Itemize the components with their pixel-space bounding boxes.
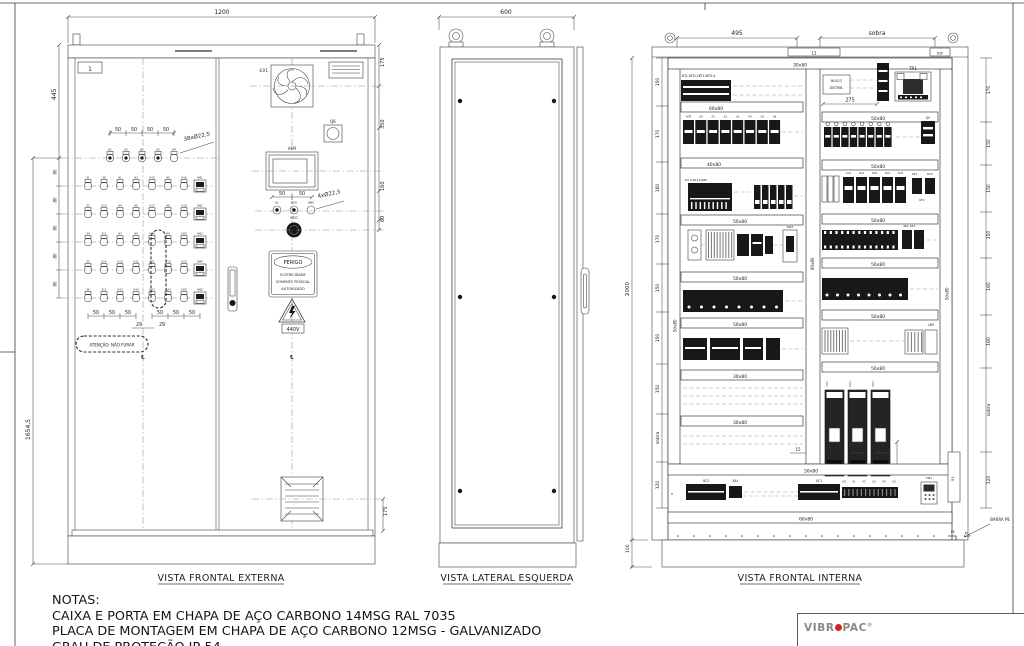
vfd-label: 3U1	[871, 381, 875, 387]
dim-50: 50	[131, 127, 137, 133]
btn-label: H20	[181, 232, 187, 236]
duct-bottom: 60x80	[799, 517, 813, 523]
transformer	[895, 72, 931, 101]
attention-label: ATENÇÃO: NÃO FURAR	[90, 343, 135, 348]
btn-label: H13	[117, 288, 123, 292]
danger-l1: ELETRICIDADE	[280, 273, 305, 277]
beg-tag: BEG	[290, 216, 298, 220]
dim-160: 160	[380, 181, 386, 191]
duct-50g: 50x80	[871, 262, 885, 268]
btn-label: H18	[181, 204, 187, 208]
view-side: 600 VISTA LATERAL ESQUERDA	[437, 9, 589, 584]
duct-60: 60x80	[709, 106, 723, 112]
btn-label: H8	[166, 204, 170, 208]
btn-label: H17	[149, 204, 155, 208]
fan-tag: -EX1	[259, 68, 269, 73]
danger-title: PERIGO	[284, 260, 303, 266]
dim-50b: 50	[109, 310, 115, 316]
ku-label: KU A BL11/JMP	[685, 178, 707, 182]
left-dim: 120	[655, 481, 661, 490]
dim-ihm-a: 50	[279, 191, 285, 197]
dim-80v: 80	[53, 169, 58, 175]
dim-175t: 175	[380, 57, 386, 67]
btn-label: H1	[108, 148, 112, 152]
side-plinth	[439, 543, 576, 567]
doc-pocket-label: 1	[88, 66, 92, 73]
duct-50e: 50x80	[871, 164, 885, 170]
title-external: VISTA FRONTAL EXTERNA	[157, 573, 284, 584]
view-internal: 495 sobra L1 X2F 50x80 80x80 50x80 30x80…	[625, 30, 1010, 584]
btn-label: H11	[133, 260, 139, 264]
int-plinth	[662, 540, 964, 567]
dim-ihm-b: 50	[299, 191, 305, 197]
dim-100: 100	[625, 544, 631, 553]
btn-label: H6	[134, 204, 138, 208]
lb5-label: LB5	[928, 323, 934, 327]
dim-445: 445	[51, 88, 58, 100]
relay	[754, 185, 761, 209]
dim-175b: 175	[383, 506, 389, 516]
dim-29a: 29	[136, 322, 142, 328]
btn-label: S6	[86, 288, 90, 292]
lug	[357, 34, 364, 45]
x-label: X5	[892, 480, 896, 484]
right-dim: 150	[986, 139, 992, 148]
dim-495: 495	[731, 30, 743, 37]
danger-sign: PERIGO ELETRICIDADE SOMENTE PESSOAL AUTO…	[269, 251, 317, 297]
door-btn-label: HBS	[308, 201, 314, 205]
vibropac-logo: VIBRPAC®	[804, 622, 873, 634]
dim-sobra: sobra	[869, 30, 886, 37]
door-handle	[228, 267, 237, 311]
btn-label: S5	[86, 260, 90, 264]
dim-2000: 2000	[625, 282, 631, 296]
lug	[73, 34, 80, 45]
xc2-label: XC2	[703, 479, 709, 483]
drawing-canvas: 1200 1 -EX1 175 Q6	[0, 0, 1024, 646]
centerline-glyph: ℄	[290, 354, 294, 361]
ihm-tag: IHM	[288, 146, 296, 151]
relay	[770, 185, 777, 209]
bloco-l1: BLOCO	[831, 79, 843, 83]
bloco-l2: DISTRIB.	[830, 86, 844, 90]
notes-title: NOTAS:	[52, 593, 100, 608]
plinth	[68, 536, 375, 564]
duct-50full: 50x80	[804, 469, 818, 475]
dim-275: 275	[845, 98, 855, 104]
barra-pe-label: BARRA PE	[990, 517, 1010, 522]
centerline-glyph: ℄	[141, 354, 145, 361]
btn-label: S1	[86, 176, 90, 180]
duct-center: 80x80	[810, 257, 815, 270]
duct-50c: 50x80	[733, 322, 747, 328]
voltage-label: 440V	[287, 327, 301, 333]
duct-vert-right	[940, 58, 952, 464]
swt-label: SWT	[787, 225, 794, 229]
left-dim: 150	[655, 385, 661, 394]
hb-label: HB4	[197, 260, 203, 264]
breaker-label: A6	[773, 115, 777, 119]
btn-label: S4	[86, 232, 90, 236]
dim-50b: 50	[189, 310, 195, 316]
duct-40: 40x80	[707, 162, 721, 168]
dim-50: 50	[147, 127, 153, 133]
duct-top-label: 30x80	[793, 63, 807, 69]
duct-30b: 30x80	[733, 420, 747, 426]
dim-80v: 80	[53, 253, 58, 259]
btn-label: S8	[102, 176, 106, 180]
breaker-label: A2	[724, 115, 728, 119]
duct-side-r: 50x80	[945, 287, 950, 300]
breaker-label: A1	[711, 115, 715, 119]
duct-vert-left	[668, 58, 680, 464]
logo-text-left: VIBR	[804, 622, 835, 634]
hb-label: HB2	[197, 204, 203, 208]
dim-1200: 1200	[214, 9, 229, 16]
relay	[778, 185, 785, 209]
btn-label: S2	[86, 204, 90, 208]
q-label: 2Q1	[859, 171, 865, 175]
tm1-label: TM1	[925, 476, 932, 480]
xc1-label: XC1	[816, 479, 822, 483]
dim-80v: 80	[53, 281, 58, 287]
vfd-label: 1U1	[825, 381, 829, 387]
louver-top	[329, 62, 363, 78]
r1-label: R1	[951, 476, 955, 481]
right-dim: sobra	[986, 403, 992, 416]
btn-label: H9	[166, 232, 170, 236]
btn-label: H4	[118, 204, 122, 208]
btn-label: S11	[102, 232, 107, 236]
right-dim: 150	[986, 184, 992, 193]
xai-label: XAI	[732, 479, 737, 483]
dim-350: 350	[380, 119, 386, 129]
q-label: 1Q1	[846, 171, 852, 175]
btn-label: S13	[102, 288, 107, 292]
btn-label: H25	[181, 288, 187, 292]
dim-1654: 1654,5	[25, 419, 32, 440]
duct-30a: 30x80	[733, 374, 747, 380]
dim-50b: 50	[125, 310, 131, 316]
pe-label: PE	[951, 530, 955, 534]
right-dim: 150	[986, 231, 992, 240]
relay	[786, 185, 793, 209]
right-dim: 160	[986, 337, 992, 346]
title-block: VIBRPAC®	[797, 613, 1024, 646]
vfd-drives: 1U12U13U1	[825, 381, 890, 476]
dim-50: 50	[115, 127, 121, 133]
breaker-label: A0	[699, 115, 703, 119]
left-dim: sobra	[655, 431, 661, 444]
duct-50f: 50x80	[871, 218, 885, 224]
base-rail	[72, 530, 373, 536]
duct-50h: 50x80	[871, 314, 885, 320]
grid-80-dims: 8080808080	[53, 169, 58, 287]
dim-50: 50	[163, 127, 169, 133]
notes-line2: PLACA DE MONTAGEM EM CHAPA DE AÇO CARBON…	[52, 624, 541, 639]
left-dim: 160	[655, 184, 661, 193]
dim-15: 15	[855, 447, 861, 452]
btn-label: H21	[149, 260, 155, 264]
btn-label: H1	[118, 176, 122, 180]
title-internal: VISTA FRONTAL INTERNA	[738, 573, 863, 584]
btn-label: H2	[124, 148, 128, 152]
duct-50d: 50x80	[871, 116, 885, 122]
duct-side-l: 50x80	[673, 319, 678, 332]
lifting-eyes	[449, 29, 554, 47]
x-label: X0	[842, 480, 846, 484]
q-label: 3Q1	[872, 171, 878, 175]
relay	[762, 185, 769, 209]
roof-box-l1: L1	[812, 51, 817, 56]
main-switch	[324, 125, 342, 142]
logo-dot-icon	[835, 624, 842, 631]
kf2-label: KF2	[919, 198, 925, 202]
left-dim: 170	[655, 130, 661, 139]
dim-80v: 80	[53, 225, 58, 231]
breaker-label: A3	[736, 115, 740, 119]
breaker-label: AGP	[686, 115, 692, 119]
btn-label: S10	[102, 204, 107, 208]
hb-label: HB1	[197, 176, 203, 180]
btn-label: H3	[156, 148, 160, 152]
q-label: 5Q1	[898, 171, 904, 175]
hb-label: HB5	[197, 288, 203, 292]
left-dim: 170	[655, 235, 661, 244]
duct-50b: 50x80	[733, 276, 747, 282]
x-label: X2	[862, 480, 866, 484]
dim-15: 15	[795, 447, 801, 452]
tr1-label: TR1	[908, 66, 917, 71]
dim-15: 15	[879, 447, 885, 452]
door-btn-label: BSA	[291, 201, 298, 205]
dim-29b: 29	[159, 322, 165, 328]
notes-line1: CAIXA E PORTA EM CHAPA DE AÇO CARBONO 14…	[52, 609, 456, 624]
vfd-label: 2U1	[848, 381, 852, 387]
danger-l2: SOMENTE PESSOAL	[276, 280, 310, 284]
btn-label: H22	[181, 260, 187, 264]
hb-label: HB3	[197, 232, 203, 236]
breaker-label: A4	[748, 115, 752, 119]
x-label: X4	[882, 480, 886, 484]
btn-label: H9	[134, 232, 138, 236]
x-label: X1	[852, 480, 856, 484]
kf1-label: KF1	[912, 172, 918, 176]
btn-label: H16	[181, 176, 187, 180]
btn-label: H5	[166, 176, 170, 180]
logo-reg-mark: ®	[867, 623, 873, 629]
notes-line3: GRAU DE PROTEÇÃO IP-54	[52, 640, 221, 646]
view-external: 1200 1 -EX1 175 Q6	[25, 9, 389, 584]
right-dim: 120	[986, 476, 992, 485]
btn-label: B1	[140, 148, 144, 152]
right-dim: 170	[986, 86, 992, 95]
left-dim: 150	[655, 78, 661, 87]
right-dim: 160	[986, 282, 992, 291]
side-handle	[581, 268, 589, 314]
dim-600: 600	[500, 9, 512, 16]
q-label: 4Q1	[885, 171, 891, 175]
btn-label: H14	[133, 288, 139, 292]
kf3-label: KF3	[927, 172, 933, 176]
contactors-label: 4K1 5K1	[903, 224, 916, 228]
q0-label: Q0	[926, 116, 931, 120]
btn-label: H23	[149, 288, 155, 292]
duct-50i: 50x80	[871, 366, 885, 372]
dim-80v: 80	[53, 197, 58, 203]
duct-50a: 50x80	[733, 219, 747, 225]
left-dim: 150	[655, 284, 661, 293]
dim-80: 80	[380, 216, 386, 222]
btn-label: H7	[118, 232, 122, 236]
btn-label: S14	[102, 260, 107, 264]
danger-l3: AUTORIZADO	[281, 287, 305, 291]
breaker-label: A5	[761, 115, 765, 119]
dim-50b: 50	[157, 310, 163, 316]
btn-label: H3	[134, 176, 138, 180]
q6-tag: Q6	[330, 119, 336, 124]
ktl-label: KTL1KTL2KTL3KTL4	[682, 74, 716, 78]
btn-label: H10	[117, 260, 123, 264]
x-label: X3	[872, 480, 876, 484]
cad-drawing: 1200 1 -EX1 175 Q6	[0, 0, 1024, 646]
title-side: VISTA LATERAL ESQUERDA	[440, 573, 574, 584]
roof-box-r: X2F	[937, 52, 944, 56]
btn-label: H15	[149, 176, 155, 180]
door-btn-label: AL	[275, 201, 279, 205]
logo-text-right: PAC	[843, 622, 867, 634]
left-dim: 150	[655, 334, 661, 343]
dim-50b: 50	[173, 310, 179, 316]
btn-label: H4	[172, 148, 176, 152]
dim-50b: 50	[93, 310, 99, 316]
